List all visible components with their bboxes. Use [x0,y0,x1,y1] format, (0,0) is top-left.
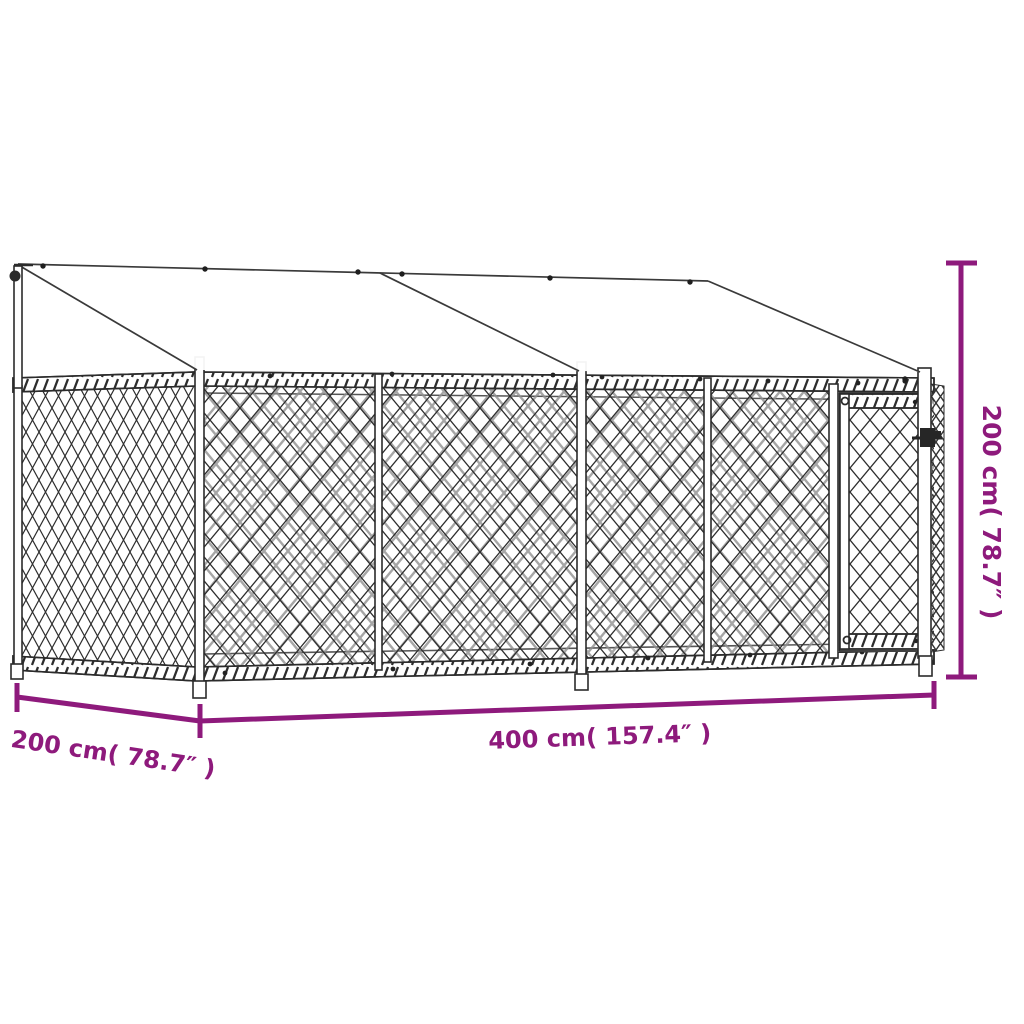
post-foot [11,664,23,679]
post-foot [919,656,932,676]
front-left-post [195,357,204,683]
door-frame-post [829,384,838,658]
middle-post [577,362,586,675]
front-right-corner-post [918,368,944,676]
front-panel-mesh [196,384,934,669]
pole-cap-fitting [10,271,21,282]
canopy-sheet [18,264,920,372]
height-dimension-label: 200 cm( 78.7″ ) [977,405,1006,620]
left-panel-mesh [15,384,196,669]
tension-bar-1 [375,374,382,670]
canopy-roof [10,263,921,388]
post-foot [575,674,588,690]
canopy-pole [10,265,34,388]
tension-bar-2 [704,378,711,662]
product-dimension-diagram: 200 cm( 78.7″ ) 400 cm( 157.4″ ) 200 cm(… [0,0,1024,1024]
height-dimension-line [946,263,977,677]
corner-mesh-edge [931,384,944,652]
door-left-member [840,394,849,649]
post-foot [193,681,206,698]
door-mesh [849,408,918,634]
depth-dimension-label: 200 cm( 78.7″ ) [9,725,217,783]
kennel-line-drawing: 200 cm( 78.7″ ) 400 cm( 157.4″ ) 200 cm(… [0,0,1024,1024]
door-bolt [913,400,917,404]
width-dimension-label: 400 cm( 157.4″ ) [488,719,712,755]
width-dimension-line [200,681,934,721]
back-left-post [14,386,22,668]
